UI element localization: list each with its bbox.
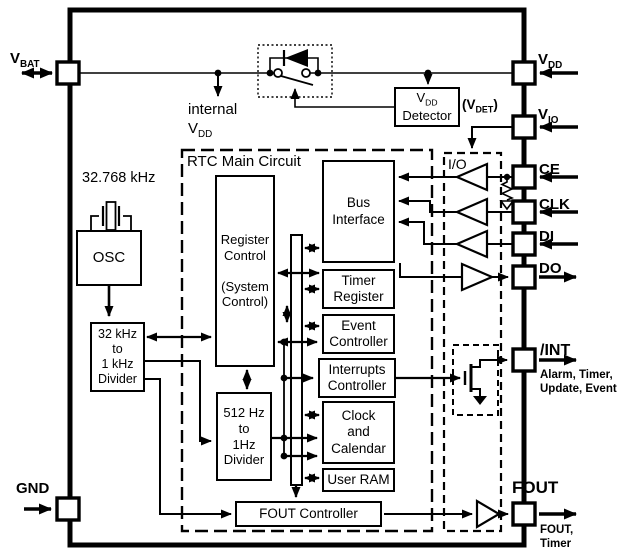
timer-register-block: Timer Register [322,269,395,309]
diode-icon [284,49,308,67]
user-ram-block: User RAM [322,468,395,492]
gnd-pin-label: GND [16,480,49,497]
vdet-label: (VDET) [462,97,498,115]
io-block-label: I/O [448,156,467,172]
vdd-pin [513,62,535,84]
clock-calendar-block: Clock and Calendar [322,401,395,464]
clk-pin-label: CLK [539,196,570,213]
fout-note: FOUT, Timer [540,523,573,551]
fout-pin-label: FOUT [512,478,558,498]
switch-icon [274,69,313,85]
resistor-icon [501,177,513,209]
ce-pin-label: CE [539,161,560,178]
ce-pin [513,166,535,188]
vbat-pin [57,62,79,84]
vbat-pin-label: VBAT [10,50,40,70]
vio-pin [513,116,535,138]
int-note: Alarm, Timer, Update, Event [540,368,617,396]
divider-32k-block: 32 kHz to 1 kHz Divider [90,322,145,392]
crystal-icon [91,202,131,230]
register-control-block: Register Control (System Control) [215,175,275,367]
do-pin-label: DO [539,260,562,277]
do-buffer-icon [462,264,492,290]
divider-512-block: 512 Hz to 1Hz Divider [216,392,272,481]
rtc-main-circuit-label: RTC Main Circuit [187,153,301,170]
int-pin [513,349,535,371]
crystal-freq-label: 32.768 kHz [82,170,155,187]
vio-pin-label: VIO [538,106,558,126]
interrupts-controller-block: Interrupts Controller [318,358,396,398]
connections [109,73,513,514]
fout-pin [513,503,535,525]
fout-buffer-icon [477,501,499,527]
internal-vdd-label: internal VDD [188,100,237,144]
clk-buffer-icon [457,199,487,225]
osc-block: OSC [76,230,142,286]
di-buffer-icon [457,231,487,257]
fout-controller-block: FOUT Controller [235,501,382,527]
gnd-pin [57,498,79,520]
int-pin-label: /INT [540,342,570,360]
vdd-pin-label: VDD [538,51,562,71]
ground-icon [473,396,487,405]
event-controller-block: Event Controller [322,314,395,354]
vdd-detector-block: VDD Detector [394,87,460,127]
bus-interface-block: Bus Interface [322,160,395,263]
do-pin [513,266,535,288]
clk-pin [513,201,535,223]
di-pin-label: DI [539,228,554,245]
rtc-block-diagram: OSC 32 kHz to 1 kHz Divider 512 Hz to 1H… [0,0,625,553]
int-driver-boundary [453,345,498,415]
di-pin [513,233,535,255]
